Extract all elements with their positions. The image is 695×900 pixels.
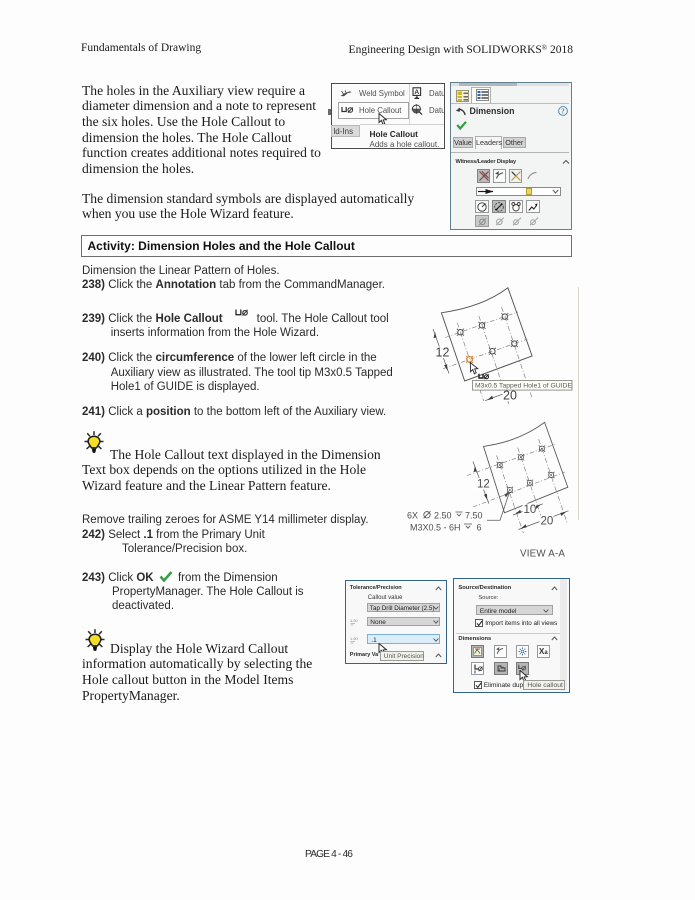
svg-text:VIEW A-A: VIEW A-A — [520, 549, 565, 560]
svg-text:A: A — [414, 89, 419, 96]
svg-text:20: 20 — [541, 516, 554, 528]
svg-text:6: 6 — [477, 522, 482, 532]
svg-text:12: 12 — [436, 346, 450, 360]
svg-text:?: ? — [561, 108, 565, 116]
svg-text:10: 10 — [524, 504, 537, 516]
svg-text:1.50: 1.50 — [350, 618, 359, 623]
svg-text:M3X0.5 - 6H: M3X0.5 - 6H — [410, 522, 461, 532]
svg-text:6X: 6X — [407, 510, 418, 520]
svg-text:M3x0.5 Tapped Hole1 of GUIDE: M3x0.5 Tapped Hole1 of GUIDE — [475, 383, 572, 390]
svg-text:7.50: 7.50 — [465, 510, 483, 520]
svg-text:20: 20 — [503, 389, 517, 403]
svg-text:12: 12 — [477, 479, 490, 491]
svg-text:1.50: 1.50 — [350, 636, 359, 641]
svg-text:2.50: 2.50 — [434, 510, 452, 520]
